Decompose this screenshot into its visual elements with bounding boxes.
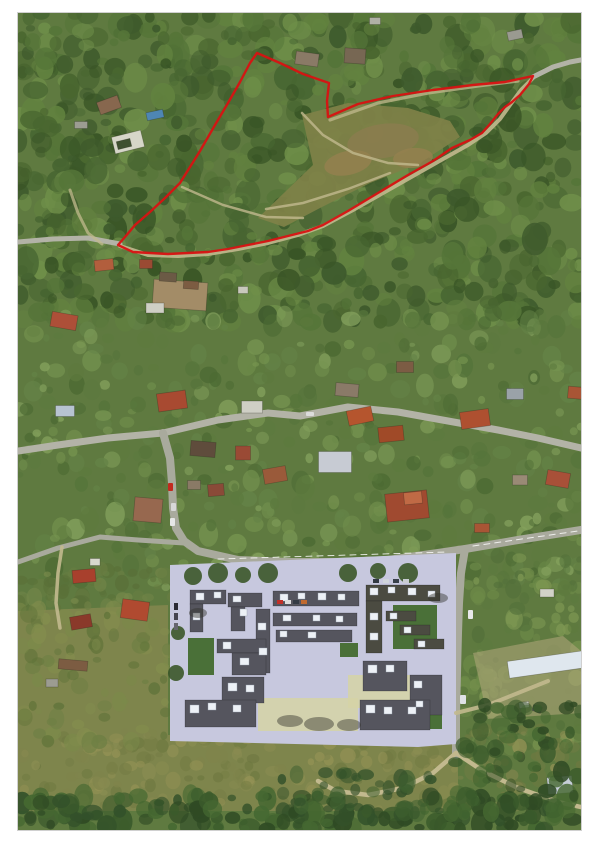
development-layer [168, 553, 456, 747]
aerial-photo [18, 13, 581, 830]
aerial-photo-svg [18, 13, 581, 830]
